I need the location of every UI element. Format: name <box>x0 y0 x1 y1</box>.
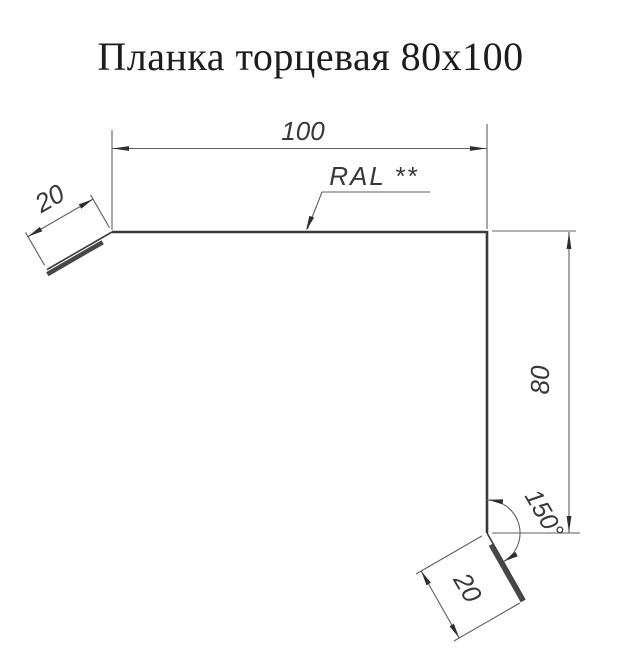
technical-drawing: 100 80 20 20 <box>0 0 621 665</box>
profile-main-lines <box>112 232 487 533</box>
dimension-arrow <box>470 146 487 151</box>
extension-line <box>91 195 110 228</box>
leader-line <box>308 192 431 229</box>
dimension-width: 100 <box>112 116 487 230</box>
hem-top-left <box>47 242 102 274</box>
dimension-arrow <box>28 227 42 237</box>
profile-outline <box>47 232 525 601</box>
coating-callout: RAL ** <box>306 161 430 231</box>
dimension-width-label: 100 <box>281 116 325 146</box>
dimension-flange-top: 20 <box>26 178 110 265</box>
profile-flange-bottom-right <box>487 533 525 600</box>
profile-flange-top-left <box>47 232 112 270</box>
dimension-arrow <box>421 571 431 585</box>
dimension-flange-top-label: 20 <box>29 178 70 219</box>
dimension-flange-bottom: 20 <box>416 536 520 641</box>
angle-label: 150° <box>519 485 569 544</box>
dimension-arrow <box>79 199 93 209</box>
dimension-angle: 150° <box>487 485 569 562</box>
drawing-page: Планка торцевая 80x100 100 80 <box>0 0 621 665</box>
extension-line <box>26 232 45 265</box>
dimension-flange-bottom-label: 20 <box>447 567 488 608</box>
dimension-arrow <box>567 233 572 250</box>
leader-arrow <box>306 216 314 231</box>
coating-label: RAL ** <box>329 161 419 191</box>
dimension-arrow <box>488 499 503 504</box>
extension-line <box>454 603 520 641</box>
hem-bottom-right <box>491 545 523 602</box>
dimension-height-label: 80 <box>525 365 555 394</box>
dimension-arrow <box>504 552 518 562</box>
dimension-arrow <box>450 624 460 638</box>
dimension-arrow <box>113 146 130 151</box>
